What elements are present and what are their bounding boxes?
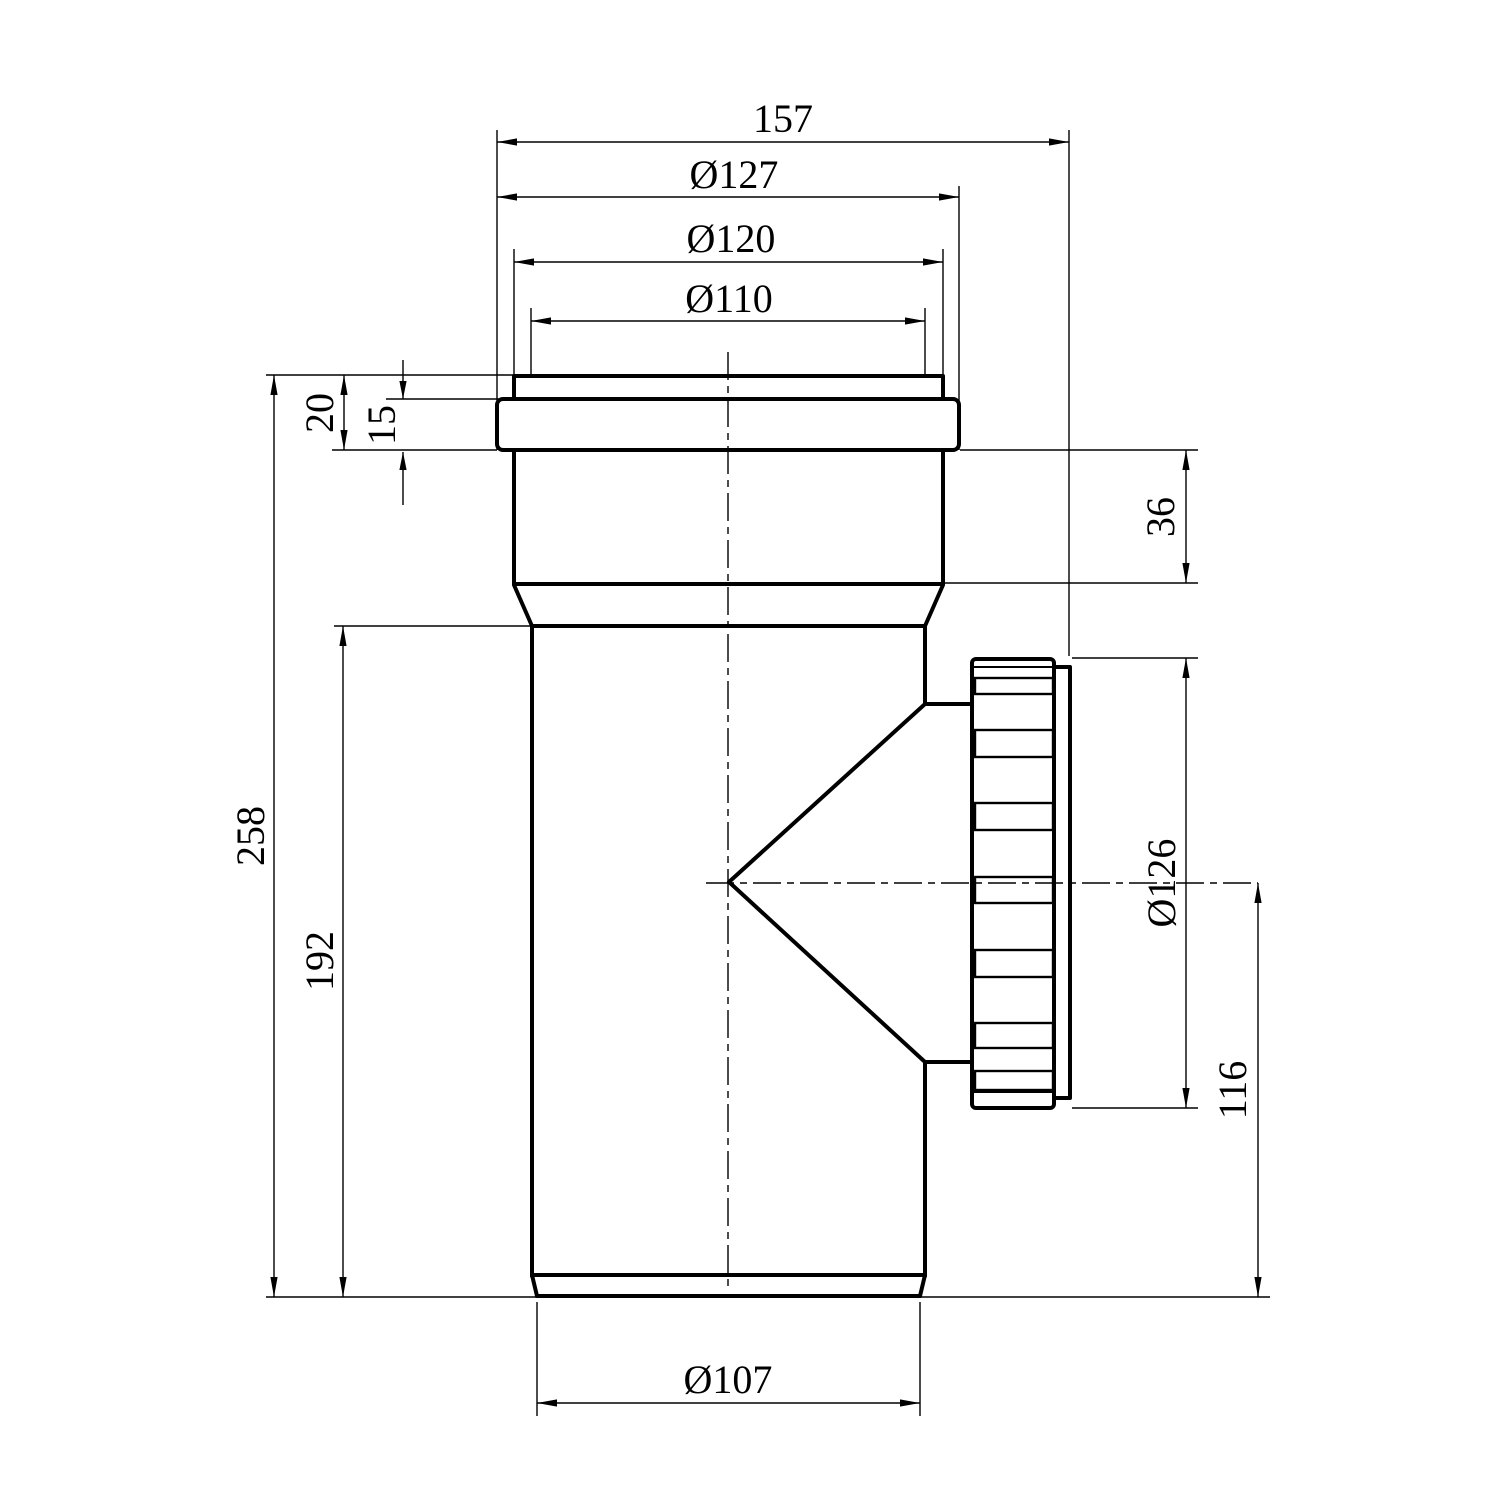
dimension-labels: 157 Ø127 Ø120 Ø110 20 15 36 258 192 Ø126…	[228, 96, 1255, 1402]
label-cap-diameter: Ø126	[1139, 839, 1184, 928]
knurl-slot	[975, 1023, 1053, 1048]
branch-cone-upper	[729, 704, 925, 882]
spigot-chamfer-right	[920, 1275, 925, 1296]
spigot-chamfer-left	[532, 1275, 537, 1296]
dim-arrow-15-bottom	[399, 452, 406, 470]
drawing-canvas: 157 Ø127 Ø120 Ø110 20 15 36 258 192 Ø126…	[0, 0, 1500, 1500]
knurl-slot	[975, 678, 1053, 694]
label-socket-outer-diameter: Ø120	[687, 216, 776, 261]
technical-drawing: 157 Ø127 Ø120 Ø110 20 15 36 258 192 Ø126…	[0, 0, 1500, 1500]
label-collar-diameter: Ø127	[690, 152, 779, 197]
label-collar-height: 15	[359, 405, 404, 445]
part-outline	[497, 376, 1070, 1296]
label-socket-below-collar: 36	[1138, 497, 1183, 537]
label-overall-width: 157	[753, 96, 813, 141]
branch-cone-lower	[729, 882, 925, 1062]
label-body-height: 192	[297, 931, 342, 991]
label-socket-bore-diameter: Ø110	[685, 276, 772, 321]
knurl-slot	[975, 877, 1053, 903]
label-spigot-diameter: Ø107	[684, 1357, 773, 1402]
cap-knurl-slots	[975, 678, 1053, 1090]
label-branch-axis-to-bottom: 116	[1210, 1061, 1255, 1120]
knurl-slot	[975, 1071, 1053, 1090]
label-overall-height: 258	[228, 806, 273, 866]
extension-lines	[266, 130, 1270, 1416]
dimension-lines	[274, 142, 1258, 1403]
dim-arrow-15-top	[399, 381, 406, 399]
knurl-slot	[975, 730, 1053, 757]
label-socket-lip-height: 20	[297, 393, 342, 433]
taper-right	[925, 585, 943, 626]
taper-left	[514, 585, 532, 626]
knurl-slot	[975, 803, 1053, 830]
knurl-slot	[975, 950, 1053, 977]
